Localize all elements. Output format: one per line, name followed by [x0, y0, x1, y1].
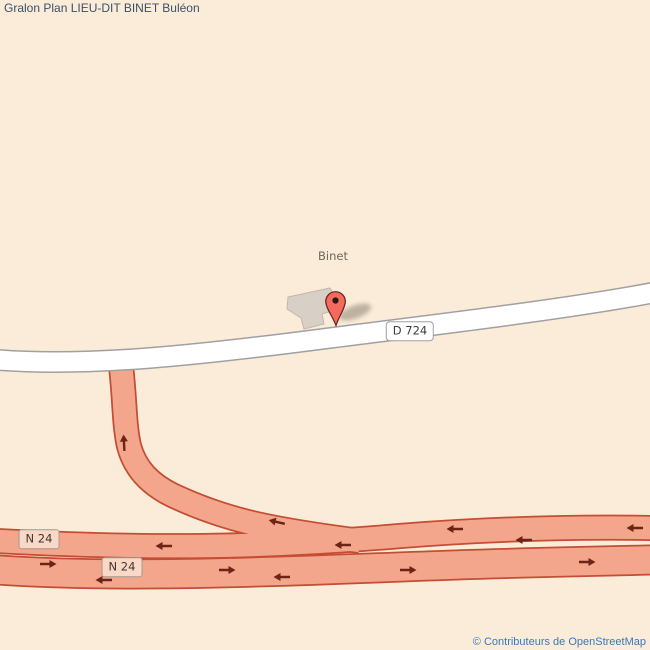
marker-pin-dot [332, 297, 338, 303]
road-ramp-fill [121, 366, 360, 541]
attribution-link[interactable]: © Contributeurs de OpenStreetMap [473, 636, 646, 648]
road-shield-d724: D 724 [386, 321, 434, 341]
page-title: Gralon Plan LIEU-DIT BINET Buléon [4, 1, 200, 15]
map-marker-icon[interactable] [326, 292, 373, 326]
marker-pin-body [326, 292, 346, 326]
road-shield-n24-1: N 24 [19, 529, 60, 549]
map-page: Gralon Plan LIEU-DIT BINET Buléon Binet … [0, 0, 650, 650]
place-label-binet: Binet [318, 249, 348, 263]
map-canvas[interactable] [0, 0, 650, 650]
road-n24-eastbound-fill [0, 560, 650, 574]
road-n24-westbound-fill [0, 528, 650, 546]
road-fills [0, 366, 650, 574]
road-shield-n24-2: N 24 [102, 557, 143, 577]
